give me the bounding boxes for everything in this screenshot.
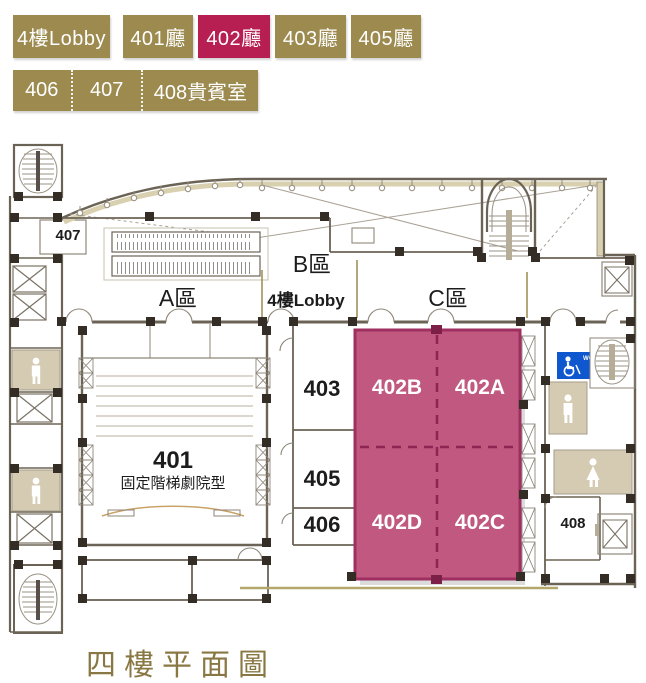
hatched-shafts (522, 336, 535, 572)
wc-text: WC (583, 356, 594, 362)
label-room-402c: 402C (455, 511, 505, 534)
floor-plan-title: 四樓平面圖 (86, 640, 276, 683)
label-lobby: 4樓Lobby (267, 290, 345, 310)
theater-401 (79, 324, 270, 545)
label-room-401: 401 (153, 447, 193, 474)
label-zone-a: A區 (159, 285, 197, 311)
label-room-402b: 402B (372, 376, 422, 399)
escalators (104, 228, 268, 280)
stage-curve (102, 506, 244, 516)
label-room-401-type: 固定階梯劇院型 (120, 474, 225, 492)
stairs-right-oval (590, 338, 635, 388)
label-room-402d: 402D (372, 511, 422, 534)
restroom-left-lower (12, 470, 60, 511)
floor-plan: WC (0, 0, 646, 683)
label-room-405: 405 (304, 466, 341, 491)
label-room-403: 403 (304, 376, 341, 401)
accessible-wc-sign: WC (557, 352, 594, 379)
room-408-area (545, 497, 632, 560)
room-402-highlight (355, 325, 525, 585)
label-room-407: 407 (55, 227, 80, 244)
label-room-406: 406 (304, 512, 341, 537)
label-room-408: 408 (560, 515, 585, 532)
label-room-402a: 402A (455, 376, 505, 399)
restroom-women (554, 450, 632, 494)
label-zone-b: B區 (293, 251, 331, 277)
right-wing: WC (541, 255, 635, 588)
restroom-men (549, 382, 587, 434)
stairs-arched (482, 179, 535, 262)
page: 4樓Lobby 401廳 402廳 403廳 405廳 406 407 408貴… (0, 0, 646, 683)
label-zone-c: C區 (428, 285, 468, 311)
stairs-bottom-left (14, 565, 62, 633)
restroom-left-upper (12, 350, 60, 390)
